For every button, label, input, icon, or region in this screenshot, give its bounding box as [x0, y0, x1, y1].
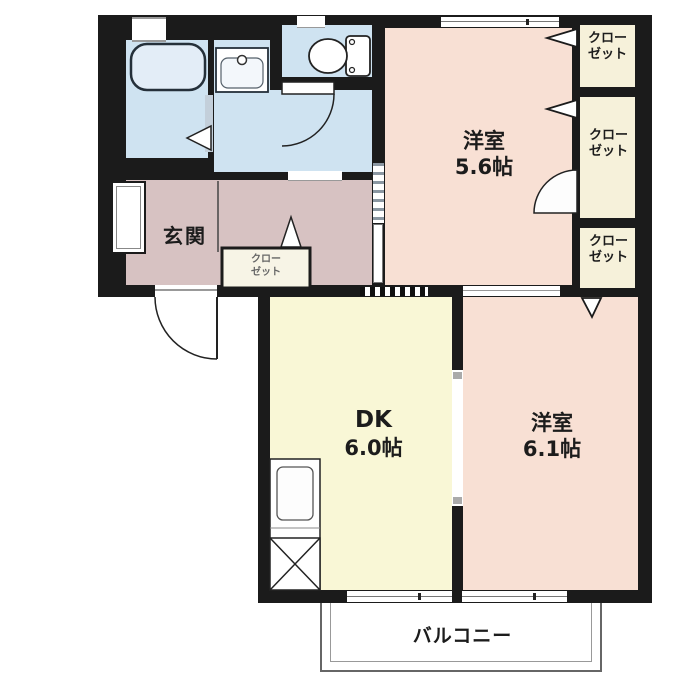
- hall-closet-label-line1: クロー: [224, 253, 308, 266]
- room-dk-size: 6.0帖: [306, 435, 441, 461]
- room-western-6-1-label: 洋室 6.1帖: [487, 410, 617, 463]
- closet-3-label-line1: クロー: [580, 234, 637, 250]
- hall-closet-label-line2: ゼット: [224, 266, 308, 279]
- closet2-folding-door-icon: [547, 100, 577, 118]
- closet-1-label: クロー ゼット: [580, 31, 635, 62]
- toilet-button-icon: [350, 40, 355, 45]
- bath-folding-door-icon: [187, 126, 211, 150]
- closet3-folding-door-icon: [582, 298, 601, 317]
- toilet-door-arc-icon: [282, 94, 334, 146]
- room-western-6-1-size: 6.1帖: [487, 436, 617, 462]
- closet-2-label-line2: ゼット: [580, 144, 637, 160]
- room-western-5-6-size: 5.6帖: [419, 154, 549, 180]
- toilet-button-icon: [350, 68, 355, 73]
- room-western-6-1-name: 洋室: [487, 410, 617, 436]
- closet-3-label: クロー ゼット: [580, 234, 637, 265]
- closet1-folding-door-icon: [547, 29, 577, 47]
- hall-closet-label: クロー ゼット: [224, 253, 308, 279]
- hall-closet-folding-door-icon: [281, 217, 301, 247]
- room-dk-label: DK 6.0帖: [306, 406, 441, 461]
- washbasin-faucet-icon: [238, 56, 247, 65]
- closet-3-label-line2: ゼット: [580, 250, 637, 266]
- closet-1-label-line2: ゼット: [580, 47, 635, 63]
- balcony-label: バルコニー: [390, 621, 535, 648]
- room-western-5-6-name: 洋室: [419, 128, 549, 154]
- room-western-5-6-label: 洋室 5.6帖: [419, 128, 549, 181]
- entrance-label: 玄関: [140, 220, 230, 249]
- toilet-door-leaf: [282, 82, 334, 94]
- toilet-bowl-icon: [309, 39, 347, 73]
- kitchen-sink-icon: [277, 467, 313, 520]
- room-dk-name: DK: [306, 406, 441, 435]
- bathtub-icon: [131, 44, 205, 90]
- fixtures-overlay: [0, 0, 700, 700]
- floor-plan: 玄関 洋室 5.6帖 DK 6.0帖 洋室 6.1帖 バルコニー クロー ゼット…: [0, 0, 700, 700]
- entrance-door-arc-icon: [155, 297, 217, 359]
- closet-1-label-line1: クロー: [580, 31, 635, 47]
- closet-2-label: クロー ゼット: [580, 128, 637, 159]
- closet-2-label-line1: クロー: [580, 128, 637, 144]
